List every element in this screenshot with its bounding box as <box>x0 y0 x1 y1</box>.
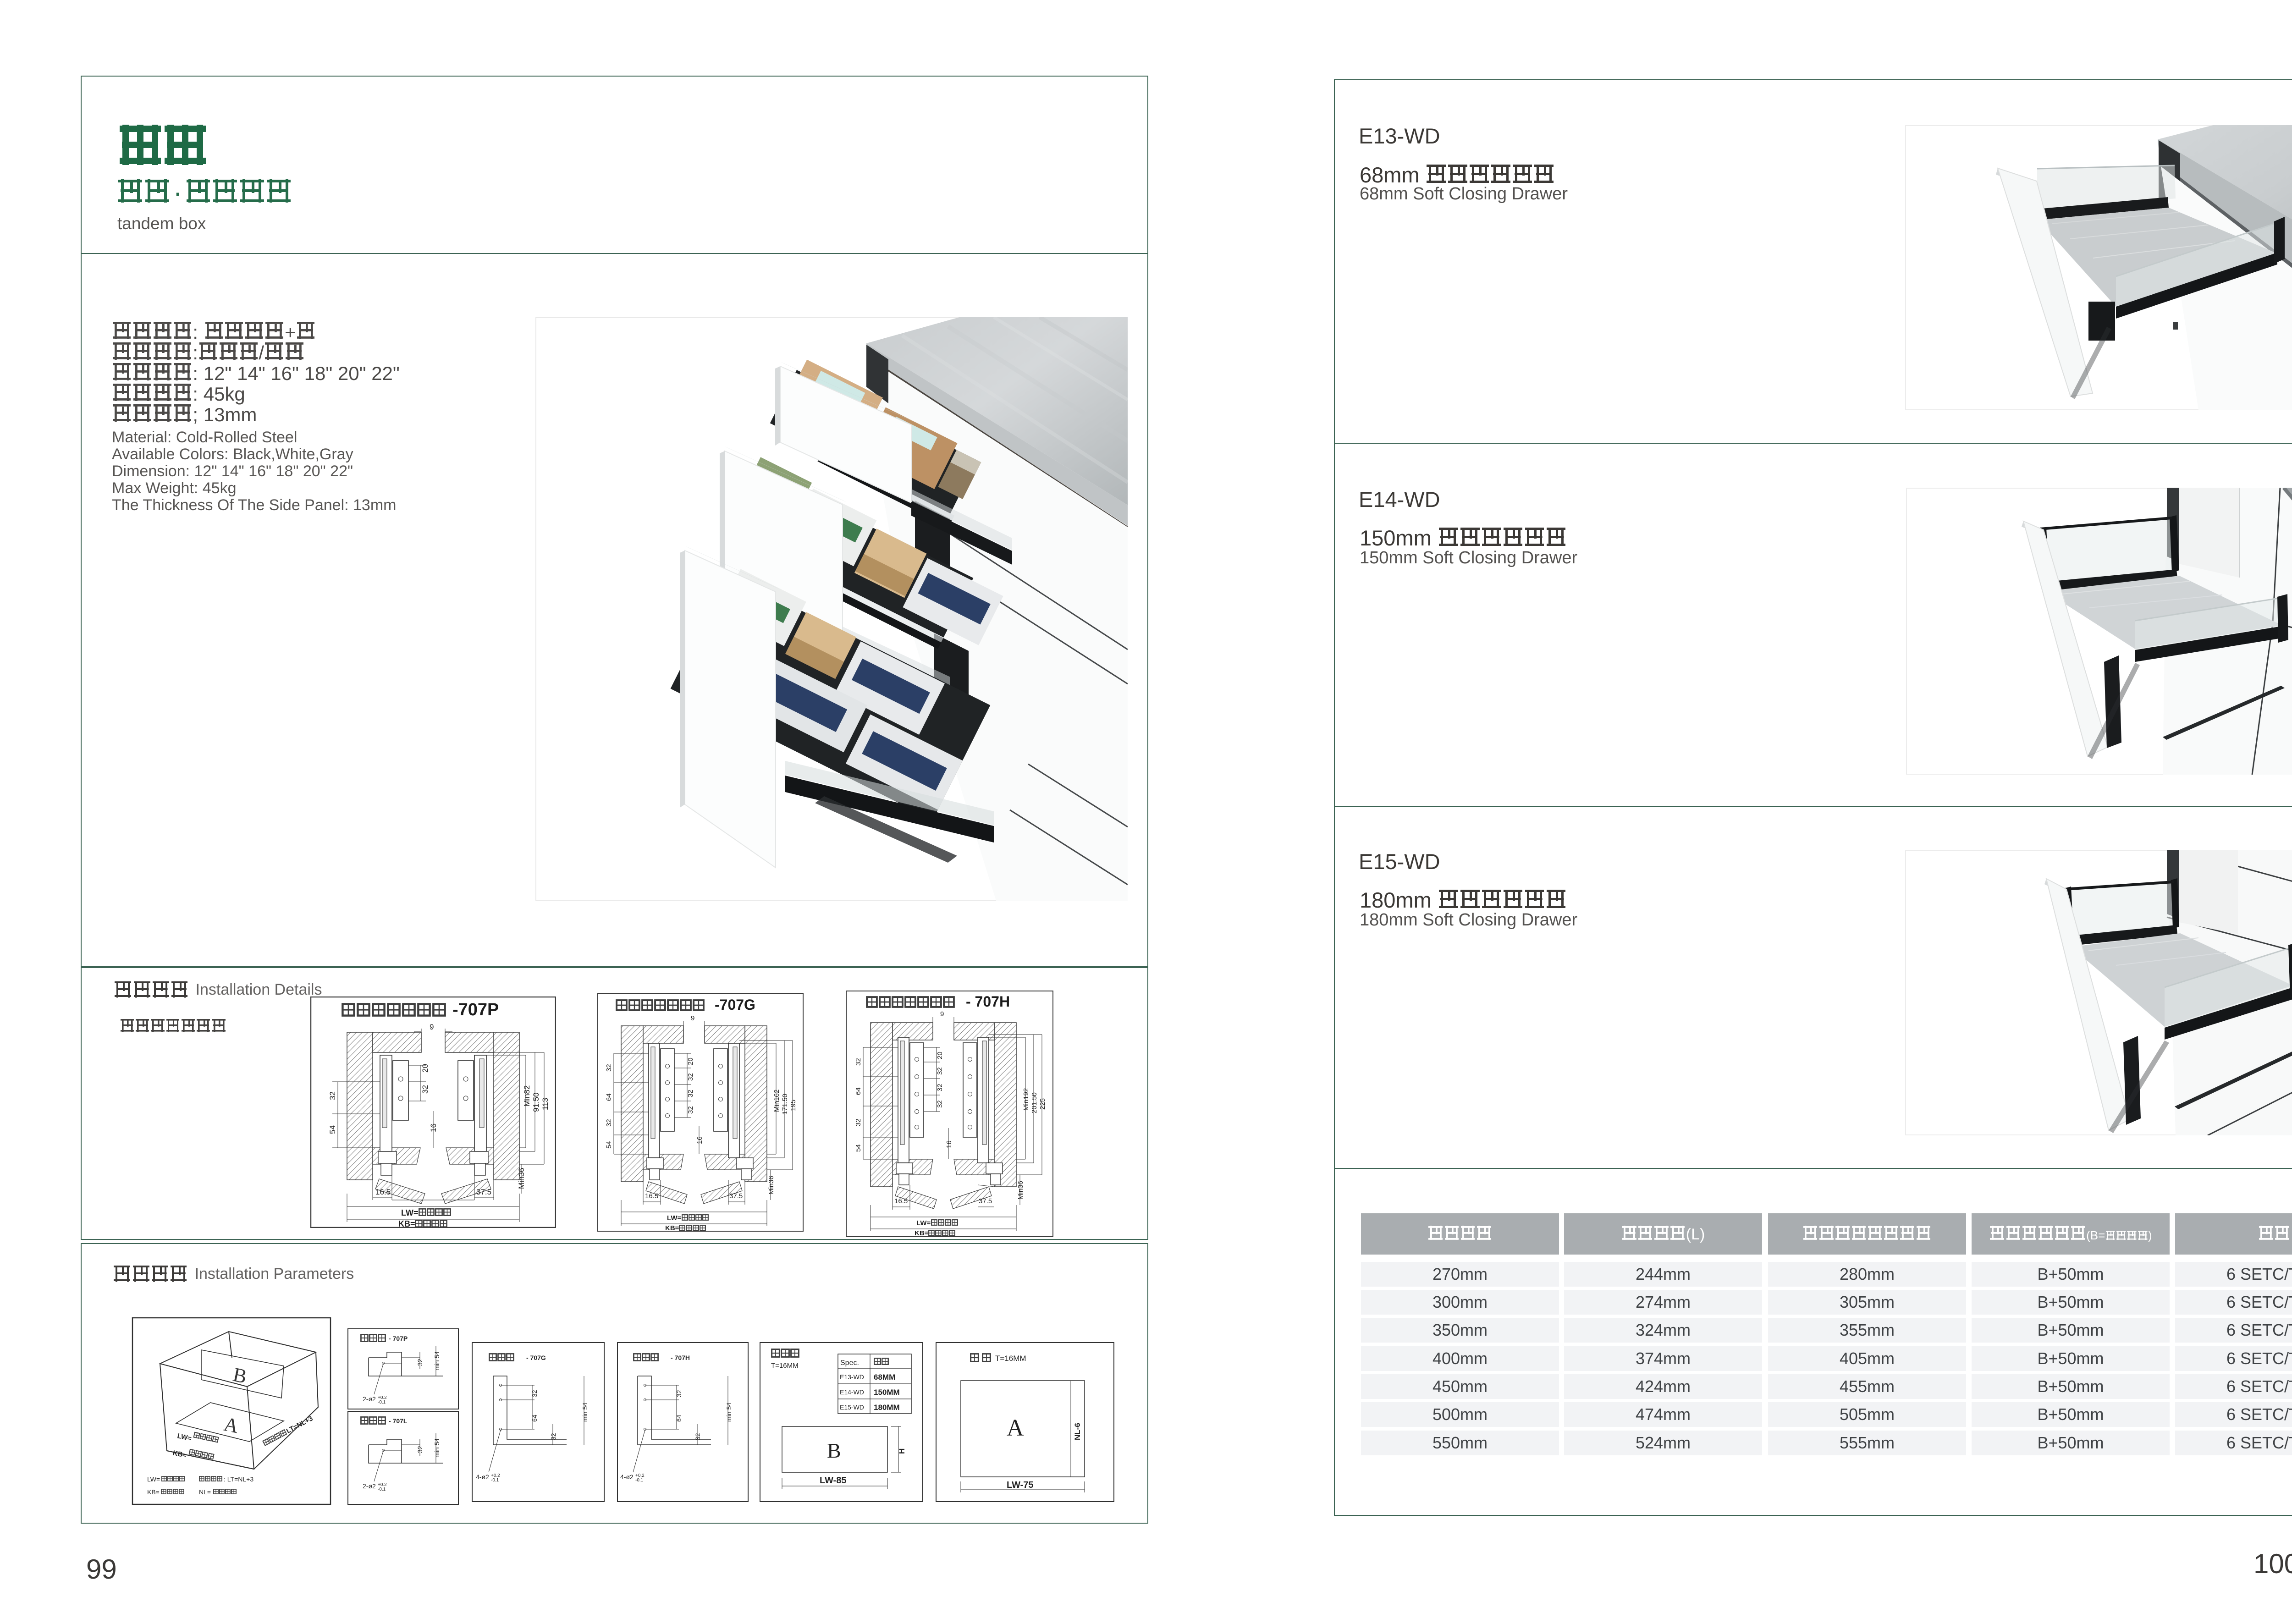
svg-text:9: 9 <box>940 1010 944 1018</box>
svg-text:32: 32 <box>687 1090 694 1097</box>
svg-text:16: 16 <box>696 1136 704 1144</box>
svg-text:E14-WD: E14-WD <box>840 1388 864 1396</box>
svg-text:16: 16 <box>429 1123 438 1132</box>
svg-text:32: 32 <box>675 1390 683 1397</box>
svg-text:32: 32 <box>936 1100 944 1108</box>
svg-text:54: 54 <box>328 1125 337 1134</box>
svg-text:2-ø2: 2-ø2 <box>363 1482 376 1490</box>
svg-text:32: 32 <box>328 1091 337 1100</box>
svg-text:LW=: LW= <box>176 1432 192 1442</box>
svg-text:37.5: 37.5 <box>729 1192 743 1200</box>
svg-text:2-ø2: 2-ø2 <box>363 1395 376 1403</box>
svg-text:225: 225 <box>1039 1098 1047 1110</box>
svg-text:LW=: LW= <box>667 1214 681 1222</box>
svg-text:NL=: NL= <box>199 1488 211 1496</box>
svg-text:37.5: 37.5 <box>476 1188 491 1196</box>
svg-text:Spec.: Spec. <box>840 1359 859 1367</box>
svg-text:B: B <box>827 1439 841 1462</box>
svg-text:32: 32 <box>550 1433 557 1440</box>
svg-text:KB=: KB= <box>172 1449 187 1459</box>
svg-text:-707G: -707G <box>715 996 755 1013</box>
svg-text:68MM: 68MM <box>874 1373 895 1382</box>
svg-text:150MM: 150MM <box>874 1388 900 1397</box>
svg-text:64: 64 <box>531 1415 538 1422</box>
svg-text:KB=: KB= <box>665 1224 679 1232</box>
svg-text:64: 64 <box>675 1415 683 1422</box>
svg-text:91.50: 91.50 <box>532 1092 540 1112</box>
svg-text:16.5: 16.5 <box>645 1192 658 1200</box>
svg-text:KB=: KB= <box>147 1488 160 1496</box>
svg-text:T=16MM: T=16MM <box>771 1362 799 1370</box>
svg-text:B: B <box>231 1363 249 1388</box>
svg-text:16: 16 <box>945 1140 953 1148</box>
svg-text:4-ø2: 4-ø2 <box>620 1473 634 1481</box>
svg-text:LT=NL+3: LT=NL+3 <box>285 1415 314 1435</box>
svg-text:LW-75: LW-75 <box>1007 1480 1034 1490</box>
svg-text:32: 32 <box>687 1073 694 1081</box>
svg-text:113: 113 <box>541 1098 550 1110</box>
svg-text:min 54: min 54 <box>581 1403 589 1422</box>
svg-text:32: 32 <box>854 1058 862 1066</box>
svg-text:4-ø2: 4-ø2 <box>476 1473 489 1481</box>
svg-text:16.5: 16.5 <box>894 1197 908 1205</box>
svg-text:LW-85: LW-85 <box>820 1475 847 1486</box>
svg-text:- 707H: - 707H <box>671 1354 690 1361</box>
svg-text:32: 32 <box>687 1106 694 1114</box>
svg-text:54: 54 <box>605 1141 613 1149</box>
svg-text:-707P: -707P <box>452 1000 499 1019</box>
svg-text:9: 9 <box>691 1014 694 1022</box>
svg-text:180MM: 180MM <box>874 1403 900 1412</box>
svg-text:LW=: LW= <box>916 1219 931 1227</box>
svg-text:32: 32 <box>421 1085 430 1094</box>
svg-text:NL-6: NL-6 <box>1073 1423 1082 1440</box>
svg-text:9: 9 <box>430 1023 434 1031</box>
svg-text:- 707L: - 707L <box>389 1417 408 1425</box>
svg-text:H: H <box>898 1448 906 1454</box>
svg-text:16.5: 16.5 <box>375 1188 391 1196</box>
svg-text:A: A <box>1007 1415 1024 1441</box>
svg-text:A: A <box>222 1413 241 1438</box>
svg-text:Min82: Min82 <box>523 1085 531 1107</box>
svg-text:E15-WD: E15-WD <box>840 1404 864 1411</box>
svg-text:20: 20 <box>421 1064 430 1073</box>
svg-text:Min36: Min36 <box>1017 1181 1025 1200</box>
svg-text:32: 32 <box>605 1119 613 1127</box>
svg-text:-0.1: -0.1 <box>378 1487 386 1492</box>
svg-text:-0.1: -0.1 <box>378 1400 386 1405</box>
svg-text:64: 64 <box>854 1087 862 1095</box>
svg-text:32: 32 <box>694 1433 701 1440</box>
svg-text:E13-WD: E13-WD <box>840 1373 864 1381</box>
svg-text:Min36: Min36 <box>767 1176 775 1195</box>
svg-text:37.5: 37.5 <box>979 1197 992 1205</box>
svg-text:- 707H: - 707H <box>966 993 1010 1010</box>
svg-text:- 707P: - 707P <box>389 1335 408 1342</box>
svg-text:32: 32 <box>531 1390 538 1397</box>
svg-text:Min192: Min192 <box>1022 1088 1030 1111</box>
svg-text:LW=: LW= <box>147 1475 160 1483</box>
svg-text:min 54: min 54 <box>433 1351 441 1371</box>
svg-text:32: 32 <box>416 1446 424 1453</box>
svg-text:LW=: LW= <box>401 1208 419 1217</box>
svg-text:-0.1: -0.1 <box>491 1478 499 1483</box>
svg-text:Min36: Min36 <box>517 1168 526 1189</box>
svg-text:min 54: min 54 <box>725 1403 733 1422</box>
svg-text:- 707G: - 707G <box>526 1354 546 1361</box>
svg-text:171.50: 171.50 <box>781 1094 789 1115</box>
svg-text:32: 32 <box>416 1359 424 1366</box>
svg-text:T=16MM: T=16MM <box>995 1354 1026 1363</box>
svg-text:min 54: min 54 <box>433 1438 441 1458</box>
svg-text:KB=: KB= <box>915 1229 929 1237</box>
svg-text:KB=: KB= <box>398 1219 415 1228</box>
svg-text:32: 32 <box>936 1084 944 1091</box>
svg-text:32: 32 <box>854 1118 862 1126</box>
svg-text:20: 20 <box>687 1057 694 1065</box>
svg-text:20: 20 <box>936 1051 944 1059</box>
svg-text:-0.1: -0.1 <box>635 1478 644 1483</box>
svg-text:Min162: Min162 <box>773 1090 781 1112</box>
svg-text:54: 54 <box>854 1144 862 1152</box>
svg-text:64: 64 <box>605 1093 613 1101</box>
svg-text:: LT=NL+3: : LT=NL+3 <box>224 1475 253 1483</box>
svg-text:201.50: 201.50 <box>1030 1092 1038 1113</box>
svg-text:32: 32 <box>936 1067 944 1075</box>
svg-text:195: 195 <box>789 1100 797 1111</box>
svg-text:32: 32 <box>605 1064 613 1072</box>
